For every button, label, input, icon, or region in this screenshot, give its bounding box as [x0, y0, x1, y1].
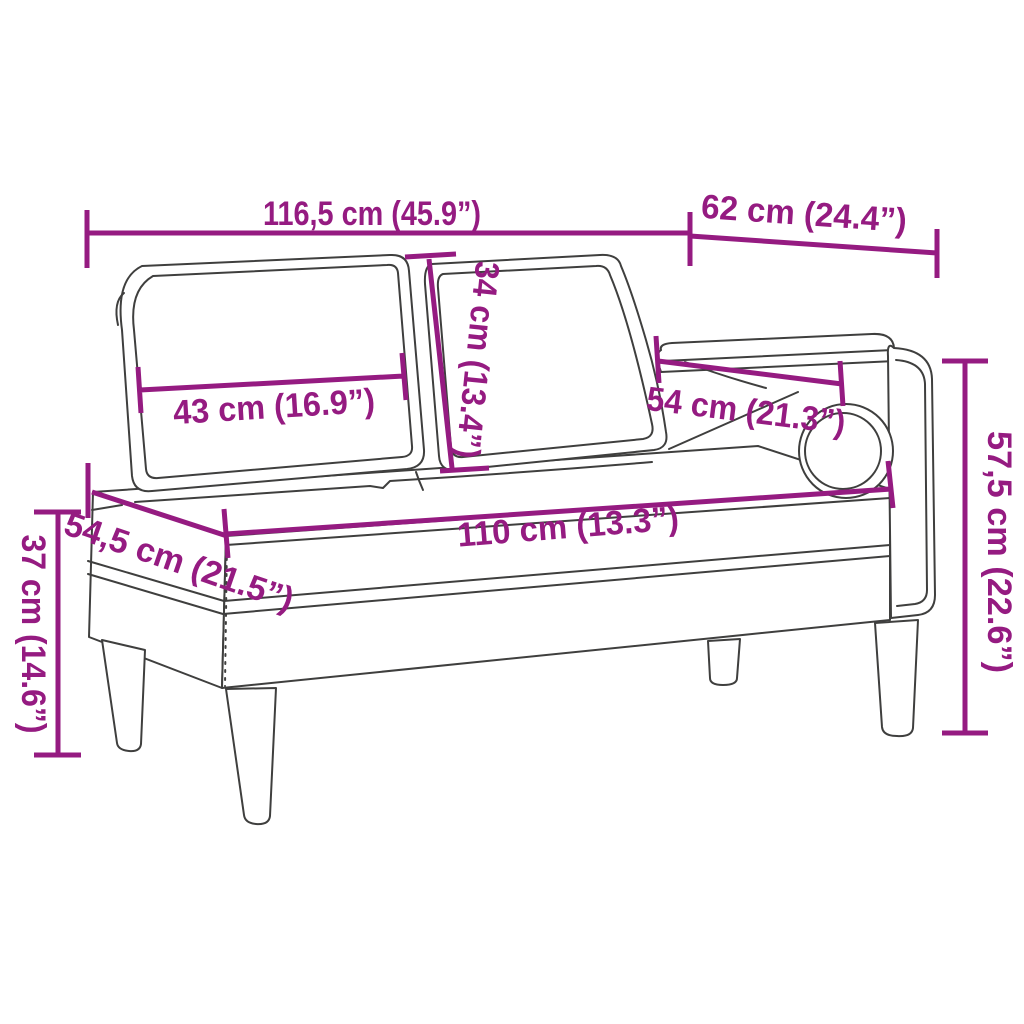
- overall-depth-label: 62 cm (24.4”): [700, 188, 908, 240]
- chaise-longue-drawing: 116,5 cm (45.9”) 62 cm (24.4”) 34 cm (13…: [0, 0, 1024, 1024]
- leg-back-middle: [708, 639, 740, 685]
- left-back-cushion: [121, 255, 424, 491]
- overall-height-label: 57,5 cm (22.6”): [980, 431, 1018, 673]
- leg-front-middle: [226, 688, 276, 824]
- leg-front-left: [102, 640, 145, 751]
- product-dimension-diagram: 116,5 cm (45.9”) 62 cm (24.4”) 34 cm (13…: [0, 0, 1024, 1024]
- overall-width-label: 116,5 cm (45.9”): [263, 195, 481, 233]
- seat-height-label: 37 cm (14.6”): [14, 535, 52, 734]
- armrest-length-label: 54 cm (21.3”): [644, 380, 847, 442]
- leg-front-right: [875, 620, 918, 736]
- right-side-panel: [888, 346, 935, 618]
